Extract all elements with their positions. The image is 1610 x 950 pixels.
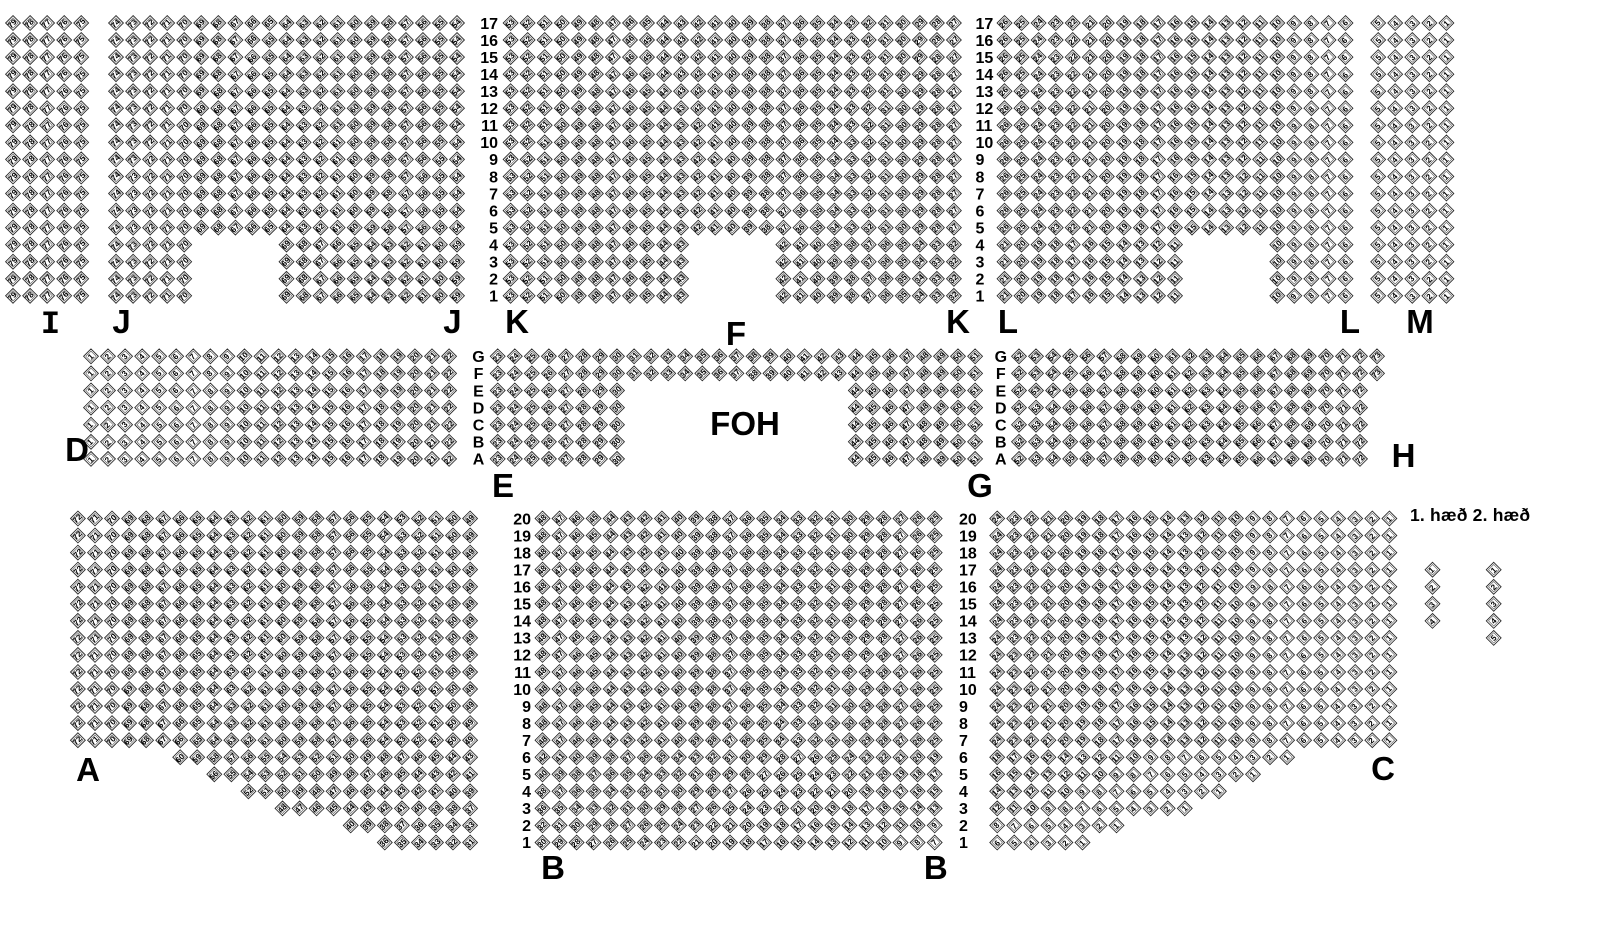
svg-text:45: 45 xyxy=(867,350,880,363)
svg-text:19: 19 xyxy=(1076,682,1089,695)
svg-text:23: 23 xyxy=(491,368,504,381)
svg-text:73: 73 xyxy=(126,34,139,47)
svg-text:76: 76 xyxy=(58,153,71,166)
svg-text:58: 58 xyxy=(310,546,323,559)
svg-text:39: 39 xyxy=(742,187,755,200)
svg-text:33: 33 xyxy=(930,238,943,251)
svg-text:41: 41 xyxy=(655,666,668,679)
svg-text:46: 46 xyxy=(623,187,636,200)
svg-text:37: 37 xyxy=(777,68,790,81)
svg-text:24: 24 xyxy=(1032,86,1045,99)
svg-text:32: 32 xyxy=(862,221,875,234)
svg-text:46: 46 xyxy=(344,785,357,798)
svg-text:49: 49 xyxy=(572,103,585,116)
svg-text:39: 39 xyxy=(764,368,777,381)
svg-text:24: 24 xyxy=(991,547,1004,560)
svg-text:31: 31 xyxy=(826,547,839,560)
svg-text:76: 76 xyxy=(58,204,71,217)
svg-text:47: 47 xyxy=(606,153,619,166)
svg-text:67: 67 xyxy=(314,273,327,286)
svg-text:77: 77 xyxy=(40,34,53,47)
svg-text:45: 45 xyxy=(641,34,654,47)
svg-text:49: 49 xyxy=(572,187,585,200)
svg-text:49: 49 xyxy=(464,564,477,577)
svg-text:24: 24 xyxy=(990,649,1003,662)
svg-text:47: 47 xyxy=(606,255,619,268)
svg-text:48: 48 xyxy=(536,717,549,730)
svg-text:56: 56 xyxy=(344,512,357,525)
svg-text:51: 51 xyxy=(969,436,982,449)
svg-text:78: 78 xyxy=(24,187,37,200)
svg-text:40: 40 xyxy=(672,717,685,730)
svg-text:62: 62 xyxy=(314,153,327,166)
svg-text:20: 20 xyxy=(1015,289,1028,302)
svg-text:69: 69 xyxy=(1302,367,1315,380)
svg-text:24: 24 xyxy=(508,368,521,381)
svg-text:54: 54 xyxy=(450,17,463,30)
svg-text:11: 11 xyxy=(1254,17,1267,30)
svg-text:50: 50 xyxy=(555,102,568,115)
svg-text:68: 68 xyxy=(297,238,310,251)
svg-text:70: 70 xyxy=(106,598,119,611)
svg-text:6: 6 xyxy=(1340,36,1350,46)
svg-text:54: 54 xyxy=(378,649,391,662)
svg-text:15: 15 xyxy=(1144,683,1157,696)
svg-text:54: 54 xyxy=(450,119,463,132)
svg-text:44: 44 xyxy=(604,512,617,525)
svg-text:50: 50 xyxy=(447,513,460,526)
svg-text:20: 20 xyxy=(877,768,890,781)
svg-text:42: 42 xyxy=(691,187,704,200)
svg-text:13: 13 xyxy=(1219,136,1232,149)
svg-text:33: 33 xyxy=(792,581,805,594)
svg-text:79: 79 xyxy=(7,238,20,251)
svg-text:68: 68 xyxy=(140,665,153,678)
svg-text:54: 54 xyxy=(378,529,391,542)
svg-text:51: 51 xyxy=(538,238,551,251)
svg-text:26: 26 xyxy=(543,350,556,363)
svg-text:40: 40 xyxy=(447,786,460,799)
svg-text:66: 66 xyxy=(246,170,259,183)
svg-text:50: 50 xyxy=(555,17,568,30)
svg-text:15: 15 xyxy=(323,453,336,466)
svg-text:21: 21 xyxy=(998,289,1011,302)
svg-text:50: 50 xyxy=(555,272,568,285)
svg-text:12: 12 xyxy=(1195,649,1208,662)
svg-text:41: 41 xyxy=(429,785,442,798)
svg-text:43: 43 xyxy=(361,802,374,815)
svg-text:13: 13 xyxy=(1219,68,1232,81)
svg-text:73: 73 xyxy=(1370,367,1383,380)
svg-text:69: 69 xyxy=(1302,401,1315,414)
svg-text:66: 66 xyxy=(1251,436,1264,449)
svg-text:67: 67 xyxy=(157,513,170,526)
svg-text:28: 28 xyxy=(876,547,889,560)
svg-text:22: 22 xyxy=(1025,631,1038,644)
svg-text:25: 25 xyxy=(525,402,538,415)
svg-text:37: 37 xyxy=(777,187,790,200)
svg-text:18: 18 xyxy=(374,436,387,449)
svg-text:47: 47 xyxy=(606,86,619,99)
svg-text:11: 11 xyxy=(1254,188,1267,201)
svg-text:35: 35 xyxy=(621,768,634,781)
svg-text:68: 68 xyxy=(140,564,153,577)
svg-text:18: 18 xyxy=(1093,513,1106,526)
svg-text:66: 66 xyxy=(174,631,187,644)
svg-text:64: 64 xyxy=(280,221,293,234)
svg-text:43: 43 xyxy=(674,187,687,200)
svg-text:22: 22 xyxy=(809,786,822,799)
svg-text:30: 30 xyxy=(611,367,624,380)
svg-text:10: 10 xyxy=(1093,769,1106,782)
svg-text:77: 77 xyxy=(41,272,54,285)
svg-text:41: 41 xyxy=(708,136,721,149)
svg-text:55: 55 xyxy=(1064,436,1077,449)
svg-text:41: 41 xyxy=(708,170,721,183)
svg-text:27: 27 xyxy=(559,419,572,432)
svg-text:8: 8 xyxy=(522,716,531,733)
svg-text:53: 53 xyxy=(505,221,518,234)
svg-text:34: 34 xyxy=(775,513,788,526)
svg-text:76: 76 xyxy=(58,103,71,116)
svg-text:10: 10 xyxy=(238,402,251,415)
svg-text:27: 27 xyxy=(559,385,572,398)
svg-text:47: 47 xyxy=(901,384,914,397)
svg-text:35: 35 xyxy=(758,665,771,678)
svg-text:18: 18 xyxy=(877,785,890,798)
svg-text:39: 39 xyxy=(743,68,756,81)
svg-text:21: 21 xyxy=(1084,17,1097,30)
svg-text:15: 15 xyxy=(1144,700,1157,713)
svg-text:36: 36 xyxy=(570,785,583,798)
svg-text:43: 43 xyxy=(674,289,687,302)
svg-text:33: 33 xyxy=(845,51,858,64)
svg-text:20: 20 xyxy=(1059,530,1072,543)
svg-text:68: 68 xyxy=(212,86,225,99)
svg-text:67: 67 xyxy=(314,290,327,303)
svg-text:51: 51 xyxy=(538,273,551,286)
svg-text:58: 58 xyxy=(382,136,395,149)
svg-text:58: 58 xyxy=(382,85,395,98)
svg-text:7: 7 xyxy=(489,186,498,203)
svg-text:16: 16 xyxy=(1169,51,1182,64)
svg-text:30: 30 xyxy=(896,136,909,149)
svg-text:30: 30 xyxy=(611,401,624,414)
svg-text:36: 36 xyxy=(794,51,807,64)
svg-text:32: 32 xyxy=(862,68,875,81)
svg-text:71: 71 xyxy=(89,564,102,577)
svg-text:32: 32 xyxy=(862,170,875,183)
svg-text:21: 21 xyxy=(1083,221,1096,234)
svg-text:67: 67 xyxy=(1268,350,1281,363)
svg-text:14: 14 xyxy=(1202,153,1215,166)
svg-text:68: 68 xyxy=(297,290,310,303)
svg-text:3: 3 xyxy=(489,255,498,272)
svg-text:1: 1 xyxy=(976,289,985,306)
svg-text:59: 59 xyxy=(292,581,305,594)
svg-text:11: 11 xyxy=(976,118,993,135)
svg-text:31: 31 xyxy=(826,734,839,747)
svg-text:13: 13 xyxy=(1220,187,1233,200)
svg-text:55: 55 xyxy=(1064,419,1077,432)
svg-text:24: 24 xyxy=(990,683,1003,696)
svg-text:17: 17 xyxy=(894,785,907,798)
svg-text:26: 26 xyxy=(998,153,1011,166)
svg-text:69: 69 xyxy=(122,717,135,730)
svg-text:11: 11 xyxy=(959,665,976,682)
svg-text:43: 43 xyxy=(621,717,634,730)
svg-text:61: 61 xyxy=(258,547,271,560)
svg-text:62: 62 xyxy=(314,102,327,115)
svg-text:23: 23 xyxy=(491,402,504,415)
svg-text:51: 51 xyxy=(430,530,443,543)
svg-text:40: 40 xyxy=(344,819,357,832)
svg-text:64: 64 xyxy=(208,513,221,526)
svg-text:20: 20 xyxy=(1100,170,1113,183)
svg-text:57: 57 xyxy=(1098,385,1111,398)
svg-text:55: 55 xyxy=(361,546,374,559)
svg-text:70: 70 xyxy=(178,153,191,166)
svg-text:59: 59 xyxy=(293,529,306,542)
svg-text:23: 23 xyxy=(1007,734,1020,747)
svg-text:21: 21 xyxy=(1042,665,1055,678)
svg-text:18: 18 xyxy=(1134,204,1147,217)
svg-text:27: 27 xyxy=(894,512,907,525)
svg-text:11: 11 xyxy=(1213,717,1226,730)
svg-text:31: 31 xyxy=(879,120,892,133)
svg-text:31: 31 xyxy=(826,631,839,644)
svg-text:31: 31 xyxy=(879,51,892,64)
svg-text:14: 14 xyxy=(306,402,319,415)
svg-text:51: 51 xyxy=(430,513,443,526)
svg-text:63: 63 xyxy=(297,85,310,98)
svg-text:51: 51 xyxy=(538,153,551,166)
svg-text:21: 21 xyxy=(1084,34,1097,47)
svg-text:28: 28 xyxy=(930,33,943,46)
svg-text:31: 31 xyxy=(826,530,839,543)
svg-text:60: 60 xyxy=(433,273,446,286)
svg-text:38: 38 xyxy=(760,170,773,183)
svg-text:20: 20 xyxy=(1100,204,1113,217)
svg-text:70: 70 xyxy=(177,85,190,98)
svg-text:77: 77 xyxy=(41,221,54,234)
svg-text:12: 12 xyxy=(1236,34,1249,47)
svg-text:70: 70 xyxy=(106,614,119,627)
svg-text:14: 14 xyxy=(1202,222,1215,235)
svg-text:42: 42 xyxy=(777,290,790,303)
svg-text:46: 46 xyxy=(884,350,897,363)
svg-text:27: 27 xyxy=(559,402,572,415)
svg-text:62: 62 xyxy=(1183,436,1196,449)
svg-text:54: 54 xyxy=(379,564,392,577)
svg-text:16: 16 xyxy=(1169,17,1182,30)
svg-text:31: 31 xyxy=(826,682,839,695)
svg-text:50: 50 xyxy=(951,350,964,363)
svg-text:69: 69 xyxy=(1302,384,1315,397)
svg-text:11: 11 xyxy=(1254,102,1267,115)
svg-text:16: 16 xyxy=(1168,204,1181,217)
svg-text:22: 22 xyxy=(1066,187,1079,200)
svg-text:26: 26 xyxy=(706,802,719,815)
svg-text:14: 14 xyxy=(1161,598,1174,611)
svg-text:60: 60 xyxy=(348,68,361,81)
svg-text:67: 67 xyxy=(229,69,242,82)
svg-text:57: 57 xyxy=(327,666,340,679)
svg-text:78: 78 xyxy=(24,272,37,285)
svg-text:54: 54 xyxy=(1046,350,1059,363)
svg-text:24: 24 xyxy=(508,436,521,449)
svg-text:77: 77 xyxy=(40,17,53,30)
svg-text:5: 5 xyxy=(522,767,531,784)
svg-text:22: 22 xyxy=(1024,717,1037,730)
svg-text:76: 76 xyxy=(58,221,71,234)
svg-text:51: 51 xyxy=(430,581,443,594)
svg-text:28: 28 xyxy=(672,802,685,815)
svg-text:43: 43 xyxy=(621,529,634,542)
svg-text:24: 24 xyxy=(1032,221,1045,234)
svg-text:47: 47 xyxy=(553,700,566,713)
svg-text:33: 33 xyxy=(845,204,858,217)
svg-text:15: 15 xyxy=(1185,153,1198,166)
svg-text:51: 51 xyxy=(538,51,551,64)
svg-text:24: 24 xyxy=(775,786,788,799)
svg-text:51: 51 xyxy=(538,119,551,132)
svg-text:19: 19 xyxy=(391,401,404,414)
svg-text:22: 22 xyxy=(442,384,455,397)
svg-text:34: 34 xyxy=(570,802,583,815)
svg-text:29: 29 xyxy=(913,120,926,133)
svg-text:49: 49 xyxy=(327,768,340,781)
svg-text:47: 47 xyxy=(553,683,566,696)
svg-text:13: 13 xyxy=(826,837,839,850)
svg-text:51: 51 xyxy=(430,631,443,644)
svg-text:52: 52 xyxy=(413,581,426,594)
svg-text:54: 54 xyxy=(276,751,289,764)
svg-text:49: 49 xyxy=(934,384,947,397)
svg-text:70: 70 xyxy=(178,204,191,217)
svg-text:14: 14 xyxy=(1117,238,1130,251)
svg-text:10: 10 xyxy=(1270,290,1283,303)
svg-text:10: 10 xyxy=(1059,786,1072,799)
svg-text:60: 60 xyxy=(1149,419,1162,432)
svg-text:72: 72 xyxy=(71,717,84,730)
svg-text:20: 20 xyxy=(1101,17,1114,30)
svg-text:57: 57 xyxy=(399,85,412,98)
svg-text:38: 38 xyxy=(706,734,719,747)
svg-text:71: 71 xyxy=(1337,436,1350,449)
svg-text:42: 42 xyxy=(691,153,704,166)
svg-text:65: 65 xyxy=(1234,436,1247,449)
svg-text:75: 75 xyxy=(75,204,88,217)
svg-text:59: 59 xyxy=(293,632,306,645)
svg-text:61: 61 xyxy=(331,68,344,81)
svg-text:17: 17 xyxy=(480,16,498,33)
svg-text:52: 52 xyxy=(412,700,425,713)
svg-text:32: 32 xyxy=(809,734,822,747)
svg-text:45: 45 xyxy=(361,785,374,798)
svg-text:46: 46 xyxy=(570,734,583,747)
svg-text:50: 50 xyxy=(555,136,568,149)
svg-text:58: 58 xyxy=(310,529,323,542)
svg-text:66: 66 xyxy=(246,16,259,29)
svg-text:56: 56 xyxy=(1081,453,1094,466)
svg-text:70: 70 xyxy=(105,717,118,730)
svg-text:38: 38 xyxy=(759,204,772,217)
svg-text:33: 33 xyxy=(930,289,943,302)
svg-text:23: 23 xyxy=(1007,717,1020,730)
svg-text:21: 21 xyxy=(894,751,907,764)
svg-text:30: 30 xyxy=(611,350,624,363)
svg-text:64: 64 xyxy=(208,614,221,627)
svg-text:17: 17 xyxy=(357,384,370,397)
svg-text:58: 58 xyxy=(310,632,323,645)
svg-text:26: 26 xyxy=(911,700,924,713)
svg-text:26: 26 xyxy=(741,786,754,799)
svg-text:25: 25 xyxy=(928,734,941,747)
svg-text:41: 41 xyxy=(656,581,669,594)
svg-text:27: 27 xyxy=(947,170,960,183)
svg-text:47: 47 xyxy=(553,717,566,730)
svg-text:50: 50 xyxy=(447,564,460,577)
svg-text:31: 31 xyxy=(879,136,892,149)
svg-text:19: 19 xyxy=(1076,631,1089,644)
svg-text:76: 76 xyxy=(58,170,71,183)
svg-text:34: 34 xyxy=(913,272,926,285)
svg-text:40: 40 xyxy=(673,598,686,611)
svg-text:45: 45 xyxy=(587,649,600,662)
svg-text:60: 60 xyxy=(348,170,361,183)
svg-text:37: 37 xyxy=(777,153,790,166)
svg-text:33: 33 xyxy=(845,17,858,30)
svg-text:12: 12 xyxy=(1195,632,1208,645)
svg-text:74: 74 xyxy=(109,170,122,183)
svg-text:41: 41 xyxy=(794,256,807,269)
svg-text:52: 52 xyxy=(310,751,323,764)
svg-text:15: 15 xyxy=(1185,51,1198,64)
svg-text:21: 21 xyxy=(425,401,438,414)
svg-text:48: 48 xyxy=(918,384,931,397)
svg-text:70: 70 xyxy=(106,581,119,594)
svg-text:67: 67 xyxy=(229,187,242,200)
svg-text:13: 13 xyxy=(1219,119,1232,132)
svg-text:18: 18 xyxy=(775,820,788,833)
svg-text:11: 11 xyxy=(894,819,907,832)
svg-text:35: 35 xyxy=(758,614,771,627)
svg-text:27: 27 xyxy=(893,547,906,560)
svg-text:46: 46 xyxy=(623,255,636,268)
svg-text:43: 43 xyxy=(621,683,634,696)
svg-text:23: 23 xyxy=(1049,33,1062,46)
svg-text:72: 72 xyxy=(71,683,84,696)
svg-text:25: 25 xyxy=(1015,103,1028,116)
svg-text:45: 45 xyxy=(640,204,653,217)
svg-text:F: F xyxy=(474,366,484,383)
svg-text:58: 58 xyxy=(1115,419,1128,432)
svg-text:3: 3 xyxy=(976,255,985,272)
svg-text:10: 10 xyxy=(1229,717,1242,730)
svg-text:13: 13 xyxy=(1135,273,1148,286)
svg-text:18: 18 xyxy=(1135,85,1148,98)
svg-text:46: 46 xyxy=(623,204,636,217)
svg-text:11: 11 xyxy=(1169,273,1182,286)
svg-text:46: 46 xyxy=(623,69,636,82)
svg-text:25: 25 xyxy=(928,683,941,696)
svg-text:10: 10 xyxy=(513,682,531,699)
svg-text:28: 28 xyxy=(930,136,943,149)
svg-text:69: 69 xyxy=(1302,350,1315,363)
svg-text:19: 19 xyxy=(1118,85,1131,98)
svg-text:15: 15 xyxy=(323,419,336,432)
